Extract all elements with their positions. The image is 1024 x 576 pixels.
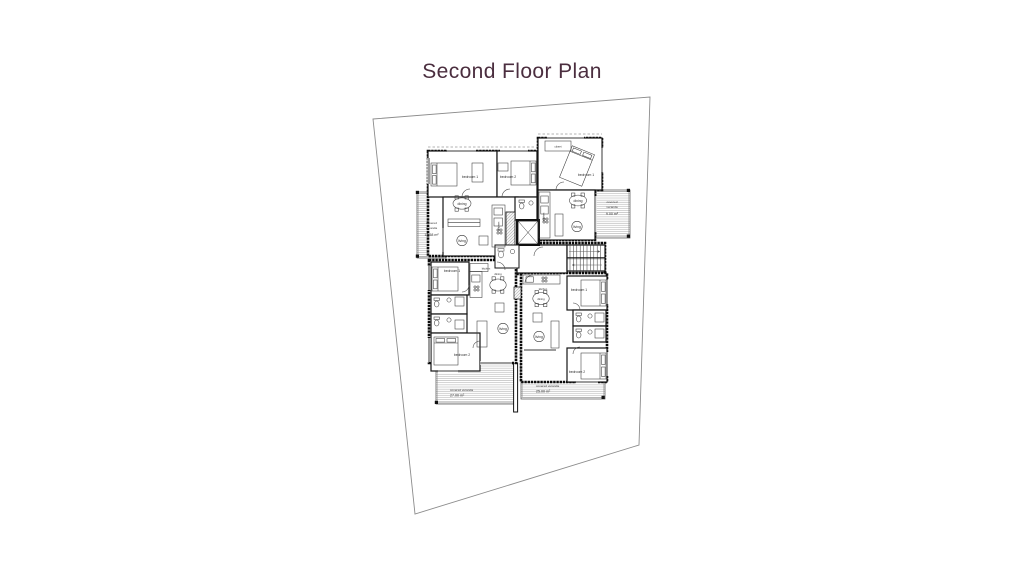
- floor-plan-drawing: bedroom 1 bedroom 2 dining living kitche…: [0, 0, 1024, 576]
- veranda-area: 25.00 m²: [536, 390, 551, 394]
- room-label-kitchen: kitchen: [497, 221, 501, 230]
- veranda-label: covered veranda: [450, 388, 473, 392]
- corridor: [517, 245, 567, 273]
- veranda-label: covered veranda: [536, 384, 559, 388]
- room-label-kitchen: kitchen: [539, 287, 548, 291]
- room-label-closet: closet: [554, 145, 561, 149]
- room-label-bedroom: bedroom 2: [569, 370, 585, 374]
- room-label-living: living: [458, 239, 466, 243]
- room-label-bedroom: bedroom 2: [454, 353, 470, 357]
- room-label-bedroom: bedroom 1: [462, 175, 478, 179]
- veranda-divider-wall: [514, 363, 518, 412]
- veranda-label: veranda: [606, 205, 617, 209]
- room-label-bedroom: bedroom 1: [578, 173, 594, 177]
- room-label-dining: dining: [573, 199, 582, 203]
- room-label-living: living: [499, 327, 507, 331]
- veranda-area: 27.00 m²: [450, 394, 465, 398]
- room-label-dining: dining: [537, 297, 545, 301]
- room-label-bedroom: bedroom 2: [500, 175, 516, 179]
- page-title: Second Floor Plan: [0, 60, 1024, 84]
- apartment-upper-right: [538, 138, 602, 240]
- elevator-symbol: [516, 219, 540, 246]
- room-label-living: living: [535, 335, 543, 339]
- duct-shaft: [514, 287, 521, 299]
- veranda-label: covered: [426, 221, 437, 225]
- room-label-kitchen: kitchen: [542, 212, 546, 221]
- veranda-area: 13.58 m²: [424, 233, 439, 237]
- room-label-bedroom: bedroom 1: [571, 288, 587, 292]
- veranda-area: 9.00 m²: [606, 212, 619, 216]
- veranda-label: veranda: [426, 226, 437, 230]
- stairs-symbol: [567, 245, 605, 271]
- wc-room: [495, 245, 519, 268]
- page: Second Floor Plan: [0, 0, 1024, 576]
- room-label-dining: dining: [457, 202, 466, 206]
- room-label-bedroom: bedroom 1: [444, 269, 460, 273]
- veranda-label: covered: [606, 200, 617, 204]
- room-label-dining: dining: [494, 272, 502, 276]
- service-shaft: [506, 212, 515, 247]
- room-label-kitchen: kitchen: [482, 267, 491, 271]
- room-label-living: living: [573, 225, 581, 229]
